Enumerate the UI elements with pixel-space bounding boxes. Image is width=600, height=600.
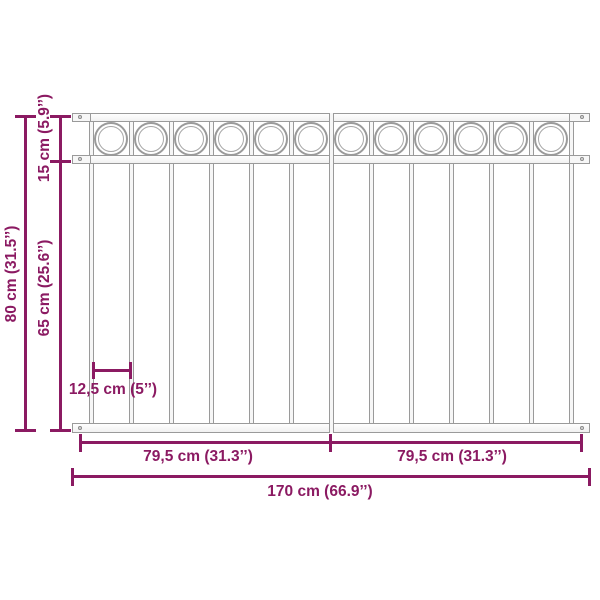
fence-circle-ornament	[454, 122, 488, 156]
screw-icon	[78, 157, 82, 161]
dim-lower-section-label: 65 cm (25.6’’)	[36, 240, 54, 337]
fence-circle-inner-ring	[138, 126, 164, 152]
screw-icon	[78, 115, 82, 119]
fence-circle-ornament	[334, 122, 368, 156]
fence-bar	[369, 122, 374, 423]
fence-circle-inner-ring	[458, 126, 484, 152]
dim-total-height-label: 80 cm (31.5’’)	[3, 226, 21, 323]
dim-tick	[92, 362, 95, 379]
screw-icon	[78, 426, 82, 430]
dim-tick	[79, 434, 82, 452]
fence-circle-ornament	[214, 122, 248, 156]
dim-bar-spacing-label: 12,5 cm (5’’)	[69, 381, 157, 399]
fence-circle-inner-ring	[298, 126, 324, 152]
screw-icon	[580, 426, 584, 430]
fence-circle-ornament	[374, 122, 408, 156]
fence-circle-inner-ring	[498, 126, 524, 152]
fence-circle-inner-ring	[98, 126, 124, 152]
fence-circle-ornament	[94, 122, 128, 156]
screw-icon	[580, 115, 584, 119]
fence-circle-ornament	[414, 122, 448, 156]
dim-section-height-line	[59, 116, 62, 431]
fence-bar	[409, 122, 414, 423]
fence-circle-ornament	[254, 122, 288, 156]
fence-circle-ornament	[174, 122, 208, 156]
dim-half-left-line	[80, 441, 331, 444]
fence-circle-ornament	[294, 122, 328, 156]
dim-tick	[129, 362, 132, 379]
fence-bar	[529, 122, 534, 423]
fence-bar	[449, 122, 454, 423]
dim-tick	[15, 429, 36, 432]
dim-total-height-line	[24, 116, 27, 431]
dim-total-width-label: 170 cm (66.9’’)	[267, 483, 372, 501]
dim-tick	[329, 434, 332, 452]
dim-tick	[588, 468, 591, 486]
fence-circle-ornament	[494, 122, 528, 156]
dim-tick	[15, 115, 36, 118]
fence-bar	[289, 122, 294, 423]
fence-circle-inner-ring	[418, 126, 444, 152]
dim-tick	[71, 468, 74, 486]
dim-tick	[50, 429, 71, 432]
dim-bar-spacing-line	[93, 369, 131, 372]
fence-bar	[569, 122, 574, 423]
dim-top-section-label: 15 cm (5.9’’)	[36, 94, 54, 182]
fence-circle-inner-ring	[378, 126, 404, 152]
fence-circle-ornament	[134, 122, 168, 156]
dim-half-right-line	[331, 441, 582, 444]
dim-half-left-label: 79,5 cm (31.3’’)	[143, 448, 253, 466]
fence-bar	[489, 122, 494, 423]
fence-circle-inner-ring	[178, 126, 204, 152]
fence-circle-inner-ring	[258, 126, 284, 152]
fence-circle-inner-ring	[538, 126, 564, 152]
fence-center-post	[329, 113, 334, 433]
fence-circle-inner-ring	[218, 126, 244, 152]
fence-bar	[249, 122, 254, 423]
dim-total-width-line	[72, 475, 591, 478]
fence-panel-drawing	[0, 0, 600, 600]
diagram-canvas: 80 cm (31.5’’) 15 cm (5.9’’) 65 cm (25.6…	[0, 0, 600, 600]
dim-half-right-label: 79,5 cm (31.3’’)	[397, 448, 507, 466]
screw-icon	[580, 157, 584, 161]
dim-tick	[580, 434, 583, 452]
fence-bar	[209, 122, 214, 423]
fence-bar	[169, 122, 174, 423]
fence-circle-inner-ring	[338, 126, 364, 152]
fence-circle-ornament	[534, 122, 568, 156]
